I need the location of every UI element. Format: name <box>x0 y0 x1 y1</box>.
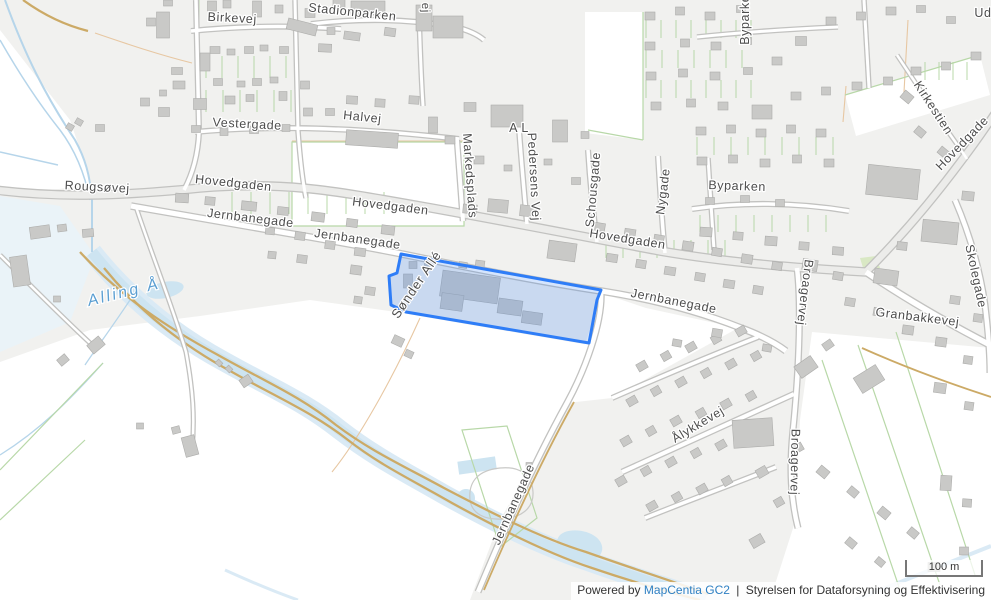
building <box>816 129 826 137</box>
building <box>697 157 707 165</box>
building <box>157 12 170 38</box>
building <box>194 99 207 110</box>
building <box>791 92 801 100</box>
building <box>694 272 705 281</box>
building <box>826 17 836 25</box>
building <box>346 218 358 227</box>
building <box>733 232 744 241</box>
building <box>304 108 313 116</box>
street-label-byparken: Byparken <box>708 178 766 194</box>
building <box>741 196 750 203</box>
building <box>295 231 306 240</box>
building <box>741 254 753 265</box>
building <box>192 126 201 133</box>
building <box>711 42 721 50</box>
building <box>687 99 696 107</box>
building <box>832 247 844 256</box>
building <box>282 125 290 132</box>
building <box>873 268 899 286</box>
building <box>141 98 150 106</box>
building <box>711 328 722 338</box>
building <box>504 165 512 171</box>
building <box>796 37 807 46</box>
building <box>635 259 646 268</box>
street-label-byparken-vertical: Byparken <box>738 0 752 45</box>
building <box>364 286 375 295</box>
street-label-partial-top: ej <box>419 3 431 14</box>
building <box>681 39 690 47</box>
building <box>787 125 796 133</box>
building <box>884 77 893 85</box>
building <box>705 12 715 20</box>
building <box>756 129 766 137</box>
building <box>175 193 189 203</box>
building <box>696 127 706 135</box>
building <box>581 132 589 139</box>
building <box>672 339 682 347</box>
building <box>711 247 722 256</box>
building <box>947 17 956 24</box>
building <box>727 125 736 133</box>
building <box>160 90 167 96</box>
building <box>772 57 782 65</box>
building <box>246 95 254 102</box>
building <box>935 337 947 347</box>
building <box>679 69 688 77</box>
building <box>902 325 914 335</box>
attribution-bar: Powered by MapCentia GC2 | Styrelsen for… <box>571 582 991 600</box>
building <box>159 108 170 117</box>
building <box>137 423 144 429</box>
building <box>268 251 277 259</box>
building <box>280 47 289 54</box>
building <box>933 382 946 394</box>
street-label-broagervej-s: Broagervej <box>787 429 802 496</box>
building <box>852 82 862 90</box>
building <box>164 0 173 6</box>
building <box>237 81 245 87</box>
building <box>445 136 455 144</box>
building <box>350 265 362 275</box>
building <box>949 295 960 304</box>
building <box>676 7 685 15</box>
building <box>260 45 268 51</box>
building <box>942 62 951 70</box>
building <box>381 225 395 236</box>
building <box>700 227 713 237</box>
attribution-agency: Styrelsen for Dataforsyning og Effektivi… <box>746 583 985 597</box>
building <box>327 28 335 35</box>
map-canvas[interactable]: Birkevej Stadionparken ej Halvej Vesterg… <box>0 0 991 600</box>
building <box>718 102 728 110</box>
mapcentia-gc2-link[interactable]: MapCentia GC2 <box>644 583 730 597</box>
building <box>245 47 254 54</box>
building <box>962 499 972 508</box>
building <box>429 117 438 133</box>
building <box>147 18 156 26</box>
building <box>464 103 476 112</box>
building <box>645 42 655 50</box>
building <box>710 72 720 80</box>
building <box>301 81 310 89</box>
building <box>646 72 656 80</box>
scale-label: 100 m <box>929 561 960 573</box>
building <box>297 254 308 263</box>
building <box>275 5 283 13</box>
building <box>544 159 552 165</box>
building <box>706 198 715 205</box>
building <box>279 92 287 101</box>
building <box>752 285 763 294</box>
building <box>729 155 738 163</box>
building <box>354 296 363 304</box>
building <box>346 96 357 105</box>
building <box>917 6 926 13</box>
building <box>173 81 185 89</box>
building <box>765 236 778 246</box>
building <box>346 130 399 149</box>
building <box>682 241 694 252</box>
building <box>963 355 973 364</box>
building <box>793 155 802 163</box>
building <box>318 44 331 53</box>
street-label-birkevej: Birkevej <box>207 10 257 27</box>
building <box>857 12 866 20</box>
building <box>223 0 231 8</box>
building <box>940 475 952 491</box>
building <box>409 96 419 105</box>
building <box>82 229 94 238</box>
building <box>799 242 810 251</box>
building <box>326 109 335 116</box>
building <box>645 12 655 20</box>
building <box>227 49 235 55</box>
building <box>54 296 61 302</box>
building <box>384 27 396 36</box>
pond <box>457 489 475 507</box>
building <box>200 53 210 71</box>
building <box>487 199 508 214</box>
building <box>606 253 618 263</box>
building <box>29 225 50 240</box>
building <box>354 247 366 256</box>
building <box>886 7 896 15</box>
building <box>214 79 223 86</box>
building <box>960 547 969 555</box>
attribution-separator: | <box>736 583 739 597</box>
building <box>760 159 770 167</box>
building <box>921 219 959 245</box>
building <box>664 266 676 276</box>
building <box>776 200 785 207</box>
building <box>205 197 216 206</box>
building <box>824 159 834 167</box>
building <box>832 271 843 280</box>
building <box>897 241 908 250</box>
building <box>57 224 67 232</box>
scale-control: 100 m <box>905 560 983 577</box>
building <box>911 67 921 75</box>
building <box>723 279 735 289</box>
building <box>651 102 661 110</box>
building <box>253 79 262 86</box>
building <box>225 96 235 104</box>
building <box>553 120 568 142</box>
building <box>744 68 753 75</box>
building <box>964 401 974 410</box>
map-viewport[interactable]: Birkevej Stadionparken ej Halvej Vesterg… <box>0 0 991 600</box>
building <box>962 191 975 201</box>
building <box>762 344 772 352</box>
building <box>433 16 463 38</box>
building <box>752 105 772 119</box>
building <box>572 178 581 185</box>
building <box>375 99 385 108</box>
building <box>265 227 275 235</box>
building <box>311 212 325 223</box>
building <box>270 77 278 83</box>
building <box>172 68 183 75</box>
building <box>866 164 921 199</box>
building <box>771 261 782 270</box>
building <box>973 313 983 322</box>
building <box>210 47 220 54</box>
attribution-powered-by: Powered by <box>577 583 640 597</box>
building <box>547 240 577 262</box>
building <box>732 418 774 449</box>
building <box>844 297 855 307</box>
street-label-ud-partial: Ud <box>974 6 991 20</box>
building <box>822 87 831 95</box>
building <box>971 52 981 60</box>
building <box>96 125 105 132</box>
